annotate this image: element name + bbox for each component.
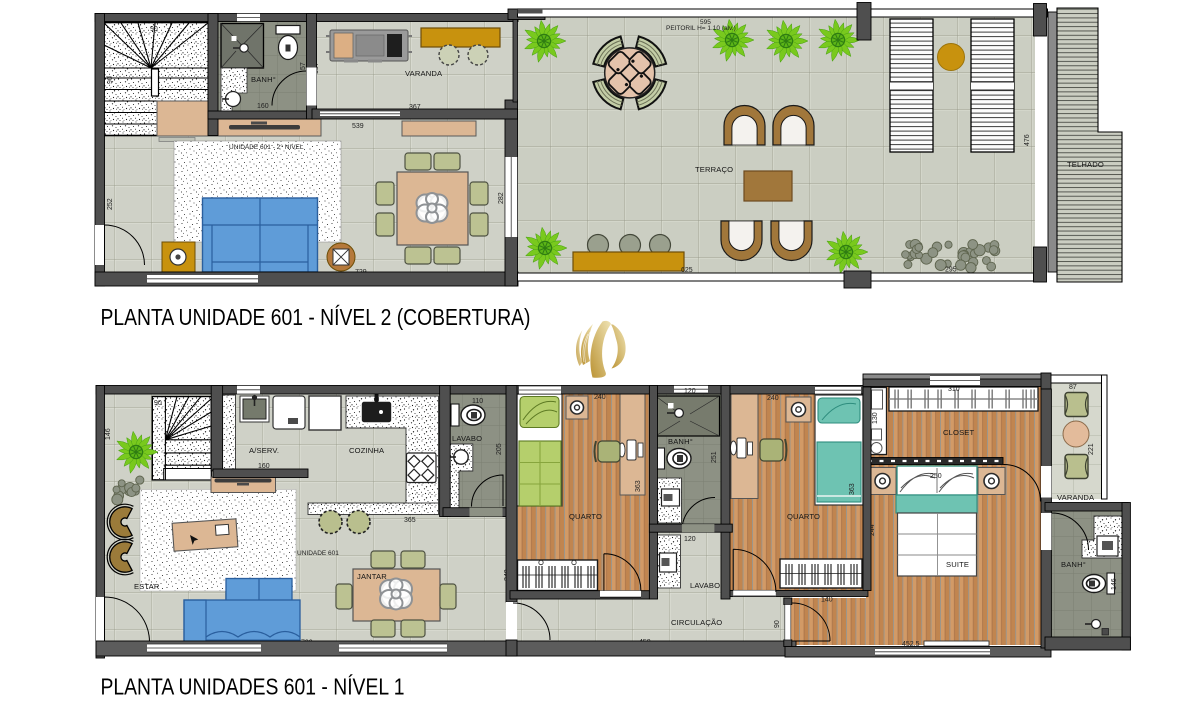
- svg-text:PLANTA UNIDADES 601 - NÍVEL 1: PLANTA UNIDADES 601 - NÍVEL 1: [101, 674, 405, 700]
- svg-text:146: 146: [1111, 578, 1118, 590]
- svg-text:160: 160: [257, 103, 269, 110]
- svg-text:120: 120: [684, 536, 696, 543]
- svg-text:476: 476: [1024, 134, 1031, 146]
- svg-text:90: 90: [774, 620, 781, 628]
- svg-text:205: 205: [496, 443, 503, 455]
- svg-text:252: 252: [107, 198, 114, 210]
- svg-text:240: 240: [594, 394, 606, 401]
- svg-text:QUARTO: QUARTO: [787, 512, 820, 521]
- svg-text:90: 90: [107, 76, 114, 84]
- svg-text:TERRAÇO: TERRAÇO: [695, 165, 733, 174]
- svg-text:365: 365: [404, 517, 416, 524]
- svg-text:TELHADO: TELHADO: [1067, 160, 1104, 169]
- svg-text:90: 90: [154, 400, 162, 407]
- svg-text:BANH°: BANH°: [1061, 560, 1086, 569]
- svg-text:595: 595: [700, 19, 711, 26]
- svg-text:363: 363: [635, 480, 642, 492]
- svg-text:UNIDADE 601: UNIDADE 601: [297, 550, 339, 557]
- svg-text:363: 363: [849, 483, 856, 495]
- svg-text:PEITORIL H= 1.10 (alv.): PEITORIL H= 1.10 (alv.): [666, 25, 736, 32]
- svg-text:JANTAR: JANTAR: [357, 572, 387, 581]
- svg-text:250: 250: [930, 473, 942, 480]
- svg-text:LAVABO: LAVABO: [452, 434, 482, 443]
- svg-text:COZINHA: COZINHA: [349, 446, 385, 455]
- svg-text:120: 120: [684, 388, 696, 395]
- svg-text:PLANTA UNIDADE 601 - NÍVEL 2 (: PLANTA UNIDADE 601 - NÍVEL 2 (COBERTURA): [101, 304, 531, 330]
- svg-text:240: 240: [767, 395, 779, 402]
- svg-text:LAVABO: LAVABO: [690, 581, 720, 590]
- svg-text:87: 87: [1069, 384, 1077, 391]
- svg-text:VARANDA: VARANDA: [1057, 493, 1095, 502]
- svg-text:282: 282: [498, 192, 505, 204]
- svg-text:UNIDADE 601 - 2° NIVEL: UNIDADE 601 - 2° NIVEL: [229, 143, 304, 151]
- svg-text:251: 251: [711, 451, 718, 463]
- svg-text:221: 221: [1088, 443, 1095, 455]
- svg-text:146: 146: [105, 428, 112, 440]
- svg-text:BANH°: BANH°: [668, 437, 693, 446]
- svg-text:CIRCULAÇÃO: CIRCULAÇÃO: [671, 618, 722, 627]
- svg-text:130: 130: [872, 412, 879, 424]
- svg-text:QUARTO: QUARTO: [569, 512, 602, 521]
- svg-text:90: 90: [150, 26, 158, 33]
- svg-text:ESTAR: ESTAR: [134, 582, 160, 591]
- svg-text:CLOSET: CLOSET: [943, 428, 974, 437]
- svg-text:BANH°: BANH°: [251, 75, 276, 84]
- svg-text:A/SERV.: A/SERV.: [249, 446, 279, 455]
- svg-text:310: 310: [948, 386, 960, 393]
- svg-text:VARANDA: VARANDA: [405, 69, 443, 78]
- svg-text:57: 57: [300, 62, 307, 70]
- svg-text:110: 110: [472, 398, 483, 405]
- svg-text:140: 140: [821, 597, 833, 604]
- svg-text:SUITE: SUITE: [946, 560, 969, 569]
- svg-text:539: 539: [352, 123, 364, 130]
- svg-text:295: 295: [945, 267, 957, 274]
